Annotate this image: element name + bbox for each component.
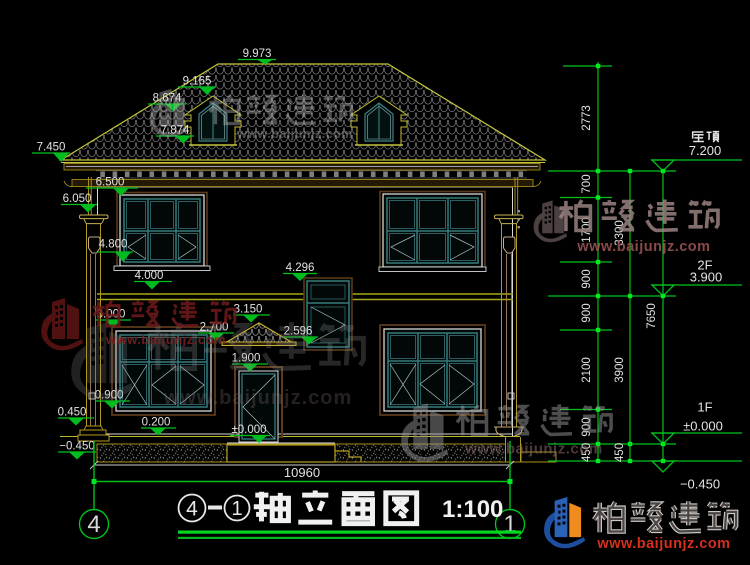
svg-text:900: 900 xyxy=(581,417,593,436)
svg-text:4.000: 4.000 xyxy=(135,270,164,282)
svg-text:−0.450: −0.450 xyxy=(680,477,720,492)
svg-text:1:100: 1:100 xyxy=(442,496,503,523)
svg-text:9.165: 9.165 xyxy=(183,76,212,88)
svg-text:450: 450 xyxy=(614,443,626,462)
svg-text:www.baijunjz.com: www.baijunjz.com xyxy=(236,127,353,141)
svg-text:www.baijunjz.com: www.baijunjz.com xyxy=(163,387,353,409)
svg-text:7.200: 7.200 xyxy=(689,143,722,158)
svg-text:0.450: 0.450 xyxy=(58,407,87,419)
svg-text:900: 900 xyxy=(581,269,593,288)
svg-text:3.150: 3.150 xyxy=(234,304,263,316)
svg-text:4.296: 4.296 xyxy=(286,262,315,274)
svg-text:www.baijunjz.com: www.baijunjz.com xyxy=(105,332,226,347)
svg-text:2773: 2773 xyxy=(581,105,593,131)
svg-text:4: 4 xyxy=(87,511,100,538)
svg-text:±0.000: ±0.000 xyxy=(231,424,266,436)
svg-text:6.050: 6.050 xyxy=(63,193,92,205)
svg-text:9.973: 9.973 xyxy=(243,48,272,60)
svg-text:1: 1 xyxy=(231,498,242,520)
svg-text:900: 900 xyxy=(581,303,593,322)
svg-text:7.450: 7.450 xyxy=(37,142,66,154)
svg-text:3900: 3900 xyxy=(614,357,626,383)
svg-text:0.200: 0.200 xyxy=(142,417,171,429)
svg-text:6.500: 6.500 xyxy=(96,177,125,189)
svg-text:7650: 7650 xyxy=(646,303,658,329)
svg-text:www.baijunjz.com: www.baijunjz.com xyxy=(464,441,602,458)
svg-text:3.900: 3.900 xyxy=(690,270,723,285)
svg-text:2100: 2100 xyxy=(581,357,593,383)
svg-text:1: 1 xyxy=(503,511,516,538)
svg-text:700: 700 xyxy=(581,174,593,193)
svg-text:10960: 10960 xyxy=(284,465,320,480)
svg-text:1F: 1F xyxy=(697,400,712,415)
svg-text:4: 4 xyxy=(186,498,198,521)
svg-text:±0.000: ±0.000 xyxy=(683,419,723,434)
svg-text:www.baijunjz.com: www.baijunjz.com xyxy=(576,239,710,255)
svg-text:www.baijunjz.com: www.baijunjz.com xyxy=(596,536,730,552)
svg-text:4.800: 4.800 xyxy=(99,239,128,251)
svg-text:−0.450: −0.450 xyxy=(59,441,95,453)
